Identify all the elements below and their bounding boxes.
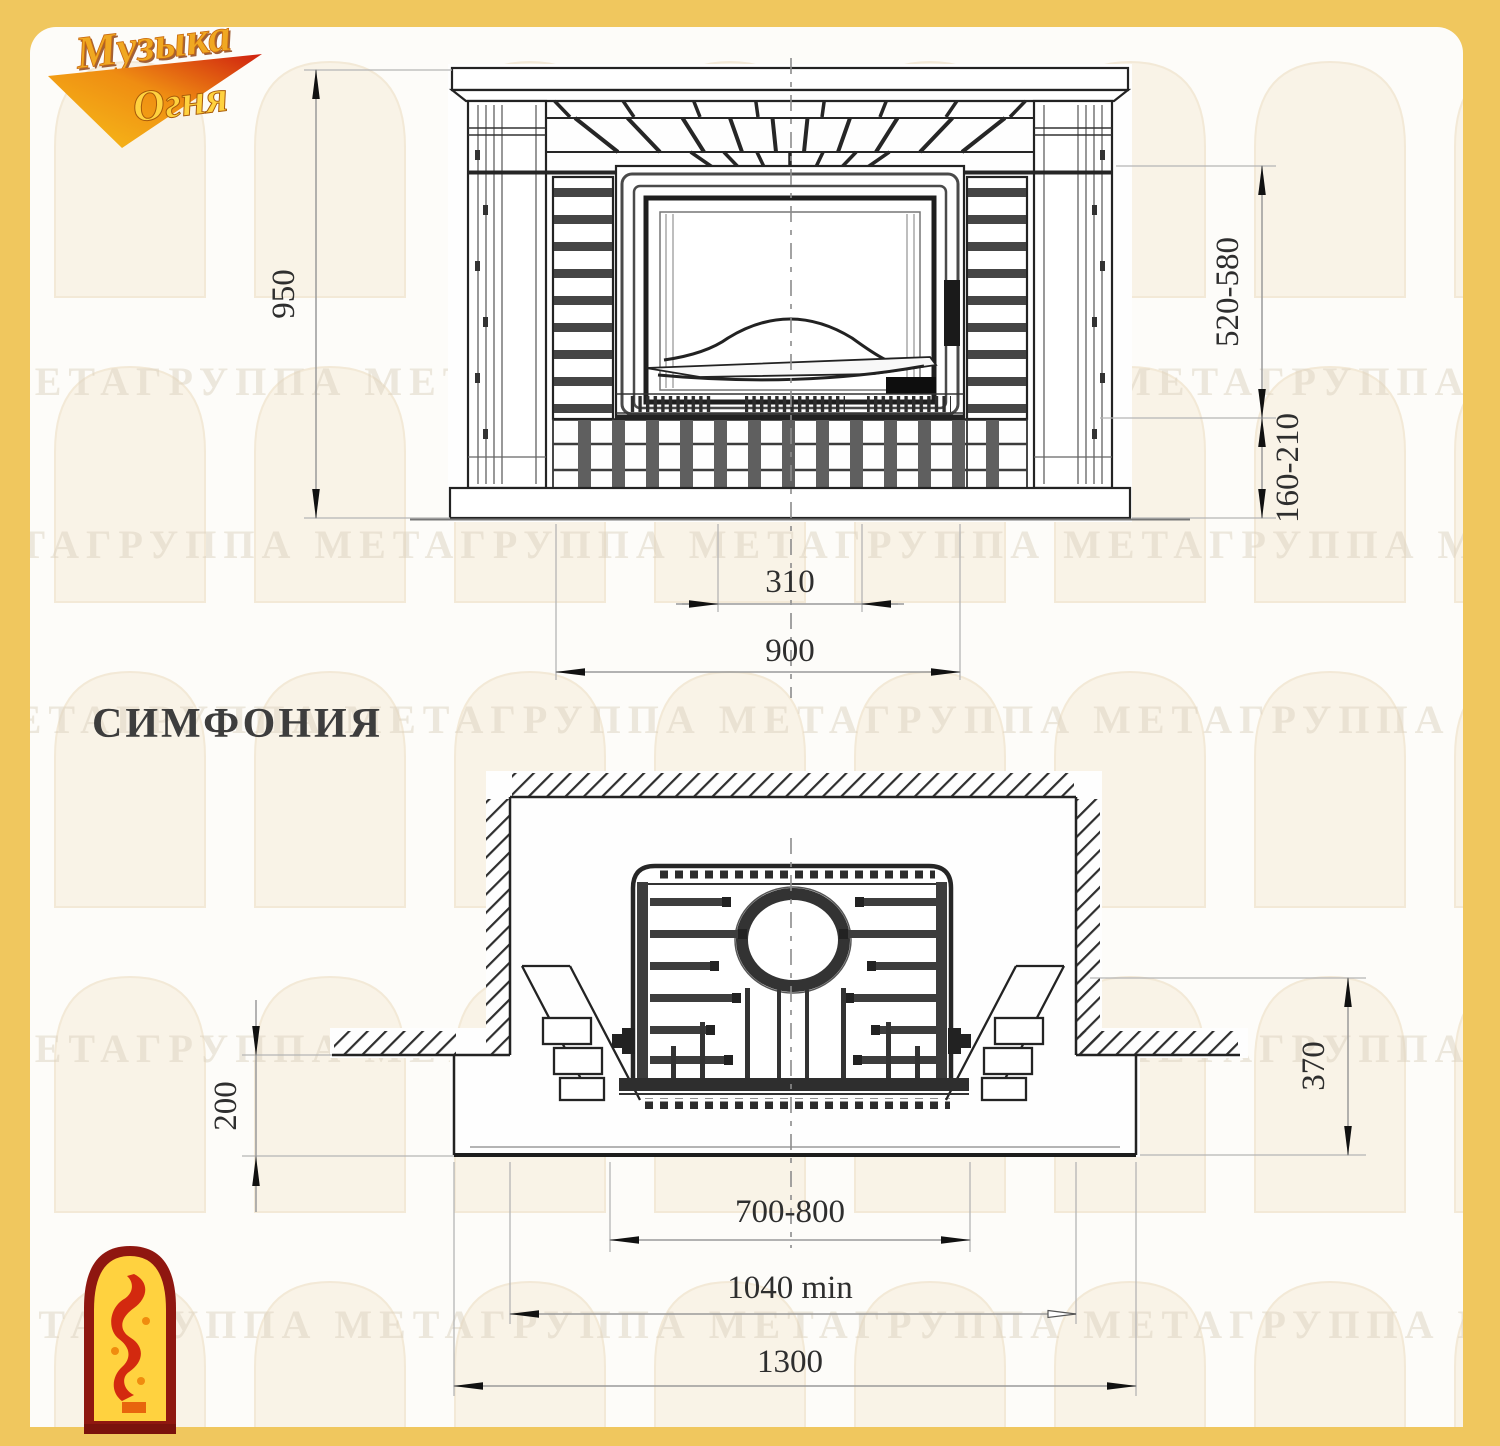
dim-grate-width-label: 310 — [765, 564, 815, 600]
dim-niche-width-label: 1040 min — [727, 1270, 853, 1306]
dim-insert-width-label: 700-800 — [735, 1194, 845, 1230]
pilaster-right — [1034, 101, 1112, 488]
dim-firebox-width-label: 900 — [765, 633, 815, 669]
dim-hearth-height-label: 160-210 — [1270, 413, 1306, 523]
door-handle — [944, 280, 960, 346]
pilaster-left — [468, 101, 546, 488]
dim-overall-width-label: 1300 — [757, 1344, 823, 1380]
base-balusters — [553, 419, 1027, 488]
mantel-shelf — [452, 68, 1128, 90]
dim-opening-height-label: 520-580 — [1210, 237, 1246, 347]
plinth — [450, 488, 1130, 518]
logo-line2: Огня — [130, 71, 230, 131]
brand-logo: Музыка Музыка Огня — [30, 4, 300, 164]
vent-slot — [886, 377, 936, 394]
flue-outlet — [742, 894, 844, 986]
firebox-front — [553, 166, 1027, 420]
dim-side-depth-label: 370 — [1296, 1041, 1332, 1091]
model-name: СИМФОНИЯ — [92, 700, 383, 748]
dim-hearth-projection-label: 200 — [208, 1081, 244, 1131]
page: { "logo": { "line1": "Музыка", "line2": … — [0, 0, 1500, 1427]
front-view — [410, 64, 1190, 522]
dim-overall-height-label: 950 — [266, 269, 302, 319]
plan-view — [330, 771, 1248, 1157]
flame-mascot — [84, 1246, 176, 1446]
